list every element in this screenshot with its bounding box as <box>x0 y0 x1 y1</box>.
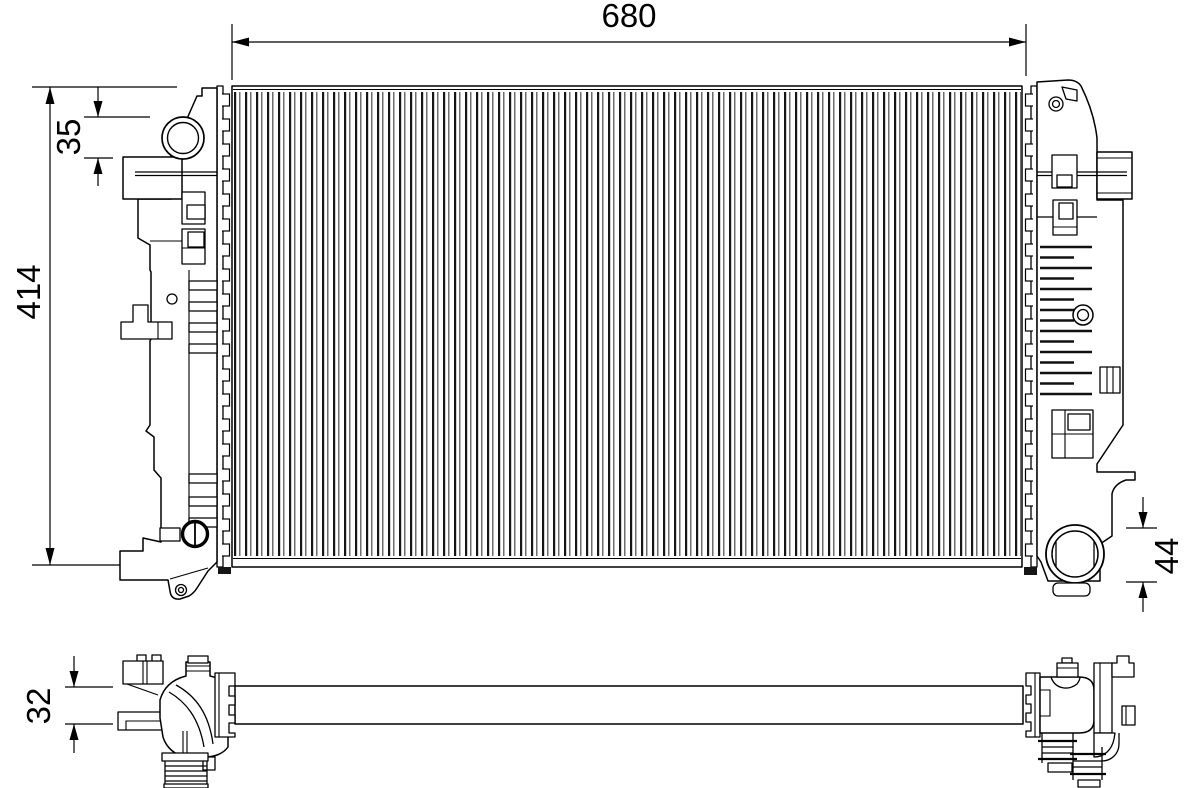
left-small-hole <box>167 294 177 304</box>
dim-width-value: 680 <box>601 0 656 34</box>
arrowhead-down <box>1139 512 1148 528</box>
dim-outlet-value: 44 <box>1148 538 1185 575</box>
radiator-drawing: 680 414 35 44 <box>0 0 1200 788</box>
left-tank <box>120 88 217 599</box>
hose-flange-lines <box>1070 754 1106 774</box>
right-end-fitting <box>1026 656 1135 787</box>
drawing-canvas: 680 414 35 44 <box>0 0 1200 788</box>
foot-hole-inner <box>179 588 184 593</box>
right-mid-square <box>1122 706 1135 725</box>
rib-band <box>189 474 217 483</box>
core-fins <box>233 92 1021 556</box>
hose-ribs <box>165 766 207 781</box>
arrowhead-left <box>232 38 249 47</box>
dim-overall-width: 680 <box>232 0 1026 80</box>
tab-notch <box>1062 658 1072 663</box>
dim-neck-value: 35 <box>50 119 87 156</box>
rib-band <box>189 344 217 353</box>
core-bottom-band <box>235 686 1023 724</box>
radiator-core <box>232 86 1022 567</box>
hose-end <box>164 784 208 788</box>
left-band-plate <box>215 673 235 737</box>
dim-height-value: 414 <box>10 264 47 319</box>
arrowhead-right <box>1009 38 1026 47</box>
right-side-clip <box>1100 367 1120 393</box>
outlet-pipe-inner <box>1052 531 1098 577</box>
hose-ribs <box>1073 761 1102 767</box>
drain-boss <box>160 528 180 541</box>
right-fitting-body <box>1040 677 1094 733</box>
arrowhead-down <box>70 671 79 687</box>
rib-band <box>189 323 217 332</box>
right-bracket-hole-inner <box>1053 101 1060 108</box>
bottom-view: 32 <box>20 655 1135 788</box>
right-header-foot <box>1024 567 1037 575</box>
dim-depth-value: 32 <box>20 688 57 725</box>
right-lower-clip-inner <box>1068 414 1090 430</box>
right-tank <box>1037 80 1135 596</box>
filler-neck-inner <box>168 123 199 154</box>
right-top-piece <box>1112 656 1134 677</box>
left-clip-1-inner <box>187 205 205 219</box>
hose-flange <box>162 753 208 761</box>
left-hose-connector <box>162 753 208 788</box>
rib-band <box>189 281 217 290</box>
outlet-foot <box>1053 583 1090 596</box>
body-edge-line <box>127 684 158 695</box>
arrowhead-down <box>94 101 103 117</box>
right-band-plate <box>1026 673 1040 737</box>
right-plate <box>1094 663 1112 733</box>
arrowhead-top <box>46 87 55 104</box>
right-clip-2-inner <box>1059 203 1073 219</box>
arrowhead-up <box>70 724 79 740</box>
bleed-port-inner <box>1078 310 1089 321</box>
hose-flange-lines <box>1038 741 1077 759</box>
front-view: 680 414 35 44 <box>10 0 1185 612</box>
dim-core-depth: 32 <box>20 656 113 753</box>
hose-end <box>1078 780 1100 787</box>
left-upper-bracket <box>123 157 182 199</box>
neck-cap <box>188 656 208 663</box>
rib-band <box>189 302 217 311</box>
left-end-fitting <box>118 655 235 788</box>
left-clip-2-inner <box>188 232 204 247</box>
left-header-teeth <box>222 86 231 567</box>
right-clip-1-inner <box>1057 175 1072 187</box>
left-header-foot <box>218 567 231 574</box>
hose-end <box>1048 763 1072 772</box>
left-header-plate <box>217 86 231 574</box>
hose-ribs <box>1042 747 1073 753</box>
right-header-plate <box>1024 86 1037 575</box>
dim-outlet-pipe: 44 <box>1126 497 1185 612</box>
right-header-teeth <box>1024 86 1033 567</box>
arrowhead-bottom <box>46 548 55 565</box>
rib-band <box>189 497 217 506</box>
right-top-tab <box>1057 663 1078 677</box>
arrowhead-up <box>94 158 103 174</box>
arrowhead-up <box>1139 582 1148 598</box>
